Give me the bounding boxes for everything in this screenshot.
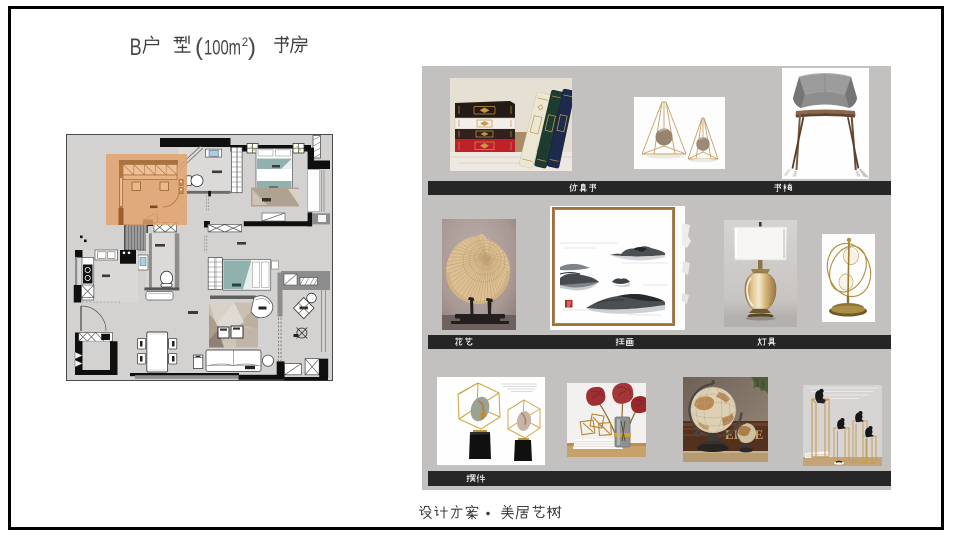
svg-text:(: ( — [195, 34, 203, 60]
svg-text:): ) — [248, 34, 256, 60]
svg-text:100m: 100m — [204, 36, 241, 60]
svg-text:B: B — [130, 34, 142, 60]
